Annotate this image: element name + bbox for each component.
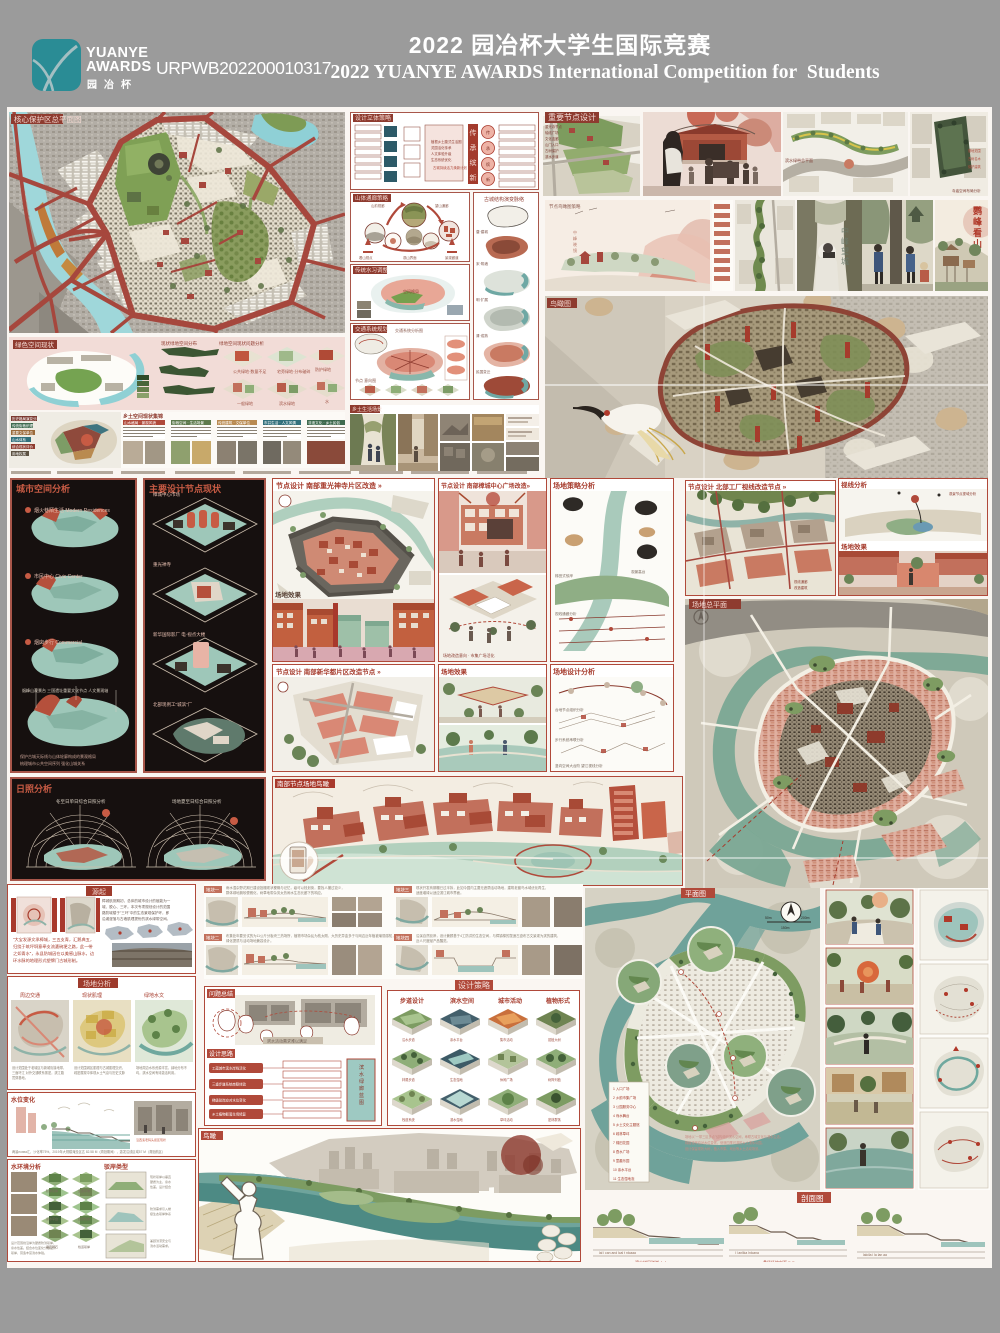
svg-text:设计范围处于老城区与新城衔接地带，: 设计范围处于老城区与新城衔接地带，: [12, 1065, 66, 1070]
svg-text:古树名木: 古树名木: [968, 156, 982, 161]
svg-text:蓝: 蓝: [359, 1092, 364, 1099]
svg-text:lal i can and lcal t nlcaa: lal i can and lcal t nlcaaa: [599, 1251, 636, 1255]
svg-text:地块四: 地块四: [396, 935, 409, 942]
svg-text:适度增绿以适应滨江城市界面。: 适度增绿以适应滨江城市界面。: [416, 890, 463, 895]
svg-text:古树保护: 古树保护: [545, 148, 559, 153]
svg-text:9 童趣乐园: 9 童趣乐园: [613, 1158, 630, 1163]
svg-text:改造建筑: 改造建筑: [794, 585, 808, 590]
svg-text:景观廊道: 景观廊道: [445, 255, 459, 260]
svg-text:冬至日单日综合日照分析: 冬至日单日综合日照分析: [56, 798, 106, 805]
svg-text:群体绿地拥软便雅化，树草地带杂务太热闹水生态长廊下的响应。: 群体绿地拥软便雅化，树草地带杂务太热闹水生态长廊下的响应。: [226, 890, 324, 895]
svg-text:6 疏林草坪: 6 疏林草坪: [613, 1131, 630, 1136]
svg-text:5 乡土文化主题馆: 5 乡土文化主题馆: [613, 1122, 640, 1127]
svg-text:疏密展现中体现乡土气息与历史文脉: 疏密展现中体现乡土气息与历史文脉: [74, 1070, 126, 1075]
svg-text:均，滨水空间有待激活利用。: 均，滨水空间有待激活利用。: [136, 1070, 177, 1075]
svg-text:烟峰山观景台 三国遗址重要文化节点 人文景观轴: 烟峰山观景台 三国遗址重要文化节点 人文景观轴: [22, 687, 108, 693]
svg-text:现状肌理: 现状肌理: [82, 992, 102, 999]
svg-text:古城结构演变脉络: 古城结构演变脉络: [484, 196, 524, 203]
svg-text:之如青水"，永县防城因在以美感山脉水，边: 之如青水"，永县防城因在以美感山脉水，边: [13, 950, 95, 957]
svg-text:城市空间分析: 城市空间分析: [16, 483, 70, 494]
svg-text:传统建筑 · 文保单位: 传统建筑 · 文保单位: [218, 420, 250, 425]
svg-text:驳岸类型: 驳岸类型: [104, 1163, 128, 1171]
svg-text:鹦: 鹦: [972, 205, 982, 216]
svg-text:传: 传: [486, 129, 490, 135]
svg-text:亲水性差。结合水位变化分级设计: 亲水性差。结合水位变化分级设计: [11, 1245, 56, 1250]
svg-text:地块三: 地块三: [396, 887, 410, 894]
svg-text:乡土空间现状集锦: 乡土空间现状集锦: [123, 413, 163, 420]
svg-text:非遗文化 · 乡土民俗: 非遗文化 · 乡土民俗: [308, 420, 340, 425]
svg-text:鸟瞰图: 鸟瞰图: [550, 299, 571, 308]
svg-text:滨水空间: 滨水空间: [450, 997, 474, 1005]
svg-text:一般绿地: 一般绿地: [237, 400, 253, 406]
svg-text:沿西溪老码头街区现状: 沿西溪老码头街区现状: [136, 1137, 166, 1142]
svg-text:工蕴城市滨水岸线活化: 工蕴城市滨水岸线活化: [212, 1066, 247, 1071]
svg-text:节点鸟瞰图策略: 节点鸟瞰图策略: [549, 203, 581, 210]
svg-text:问题总结: 问题总结: [209, 990, 233, 998]
svg-text:绿地空间现状问题分析: 绿地空间现状问题分析: [219, 340, 264, 347]
svg-text:设计立体策略: 设计立体策略: [355, 114, 391, 122]
svg-text:城市活动: 城市活动: [498, 997, 522, 1005]
svg-text:水位变化: 水位变化: [11, 1096, 35, 1104]
svg-text:观景高台: 观景高台: [631, 569, 646, 574]
svg-text:鸟瞰: 鸟瞰: [203, 1131, 217, 1140]
svg-text:文化连廊: 文化连廊: [545, 136, 559, 141]
svg-text:滨水活动需求。: 滨水活动需求。: [150, 1243, 171, 1248]
svg-text:滨水湿地: 滨水湿地: [450, 1117, 464, 1122]
svg-text:滨: 滨: [359, 1064, 364, 1071]
svg-text:峰: 峰: [841, 236, 849, 246]
svg-text:竖向空间大台阶 望江视线分析: 竖向空间大台阶 望江视线分析: [555, 763, 603, 768]
svg-text:传: 传: [470, 128, 477, 137]
svg-text:乡土生活场景: 乡土生活场景: [352, 406, 382, 413]
svg-text:孤植大树: 孤植大树: [548, 1037, 562, 1042]
svg-text:草坪活动: 草坪活动: [500, 1117, 513, 1122]
svg-text:滨水绿带总平面: 滨水绿带总平面: [785, 157, 813, 163]
svg-text:8 叠水广场: 8 叠水广场: [613, 1149, 630, 1154]
svg-text:山门入口: 山门入口: [545, 142, 559, 147]
svg-text:设计范围线沿岸为硬质防洪驳岸，: 设计范围线沿岸为硬质防洪驳岸，: [11, 1240, 56, 1245]
svg-text:峰: 峰: [973, 216, 983, 227]
svg-text:缤: 缤: [470, 158, 477, 167]
svg-text:望: 望: [841, 246, 849, 256]
svg-text:4 戏水舞台: 4 戏水舞台: [613, 1113, 630, 1118]
svg-text:周边交通: 周边交通: [20, 992, 40, 999]
svg-text:水: 水: [359, 1071, 364, 1078]
svg-text:绿地水文: 绿地水文: [144, 992, 164, 999]
svg-text:阶梯驳岸: 阶梯驳岸: [46, 1188, 58, 1193]
svg-text:10 亲水平台: 10 亲水平台: [613, 1167, 632, 1172]
svg-text:性差。设计结合: 性差。设计结合: [150, 1184, 171, 1189]
svg-text:城: 城: [841, 257, 849, 266]
svg-text:200m: 200m: [801, 916, 810, 920]
svg-text:绿: 绿: [359, 1078, 364, 1085]
svg-text:人文体验升级: 人文体验升级: [431, 151, 452, 156]
svg-text:近人尺度赋产品醒范。: 近人尺度赋产品醒范。: [416, 938, 450, 943]
svg-text:场地总平面: 场地总平面: [692, 600, 727, 609]
svg-text:滨水梯田驳岸 A-A: 滨水梯田驳岸 A-A: [635, 1259, 667, 1262]
svg-text:交通系统分析图: 交通系统分析图: [395, 327, 423, 333]
svg-text:重光寺节点: 重光寺节点: [545, 124, 563, 129]
svg-text:兼顾洪涝安全与: 兼顾洪涝安全与: [150, 1238, 171, 1243]
svg-text:节点设计 南部新华都片区改造节点 »: 节点设计 南部新华都片区改造节点 »: [276, 667, 381, 676]
svg-text:栈道系统: 栈道系统: [402, 1117, 416, 1122]
svg-text:山前视廊: 山前视廊: [371, 203, 385, 208]
svg-text:植根乡土腹式生活圈: 植根乡土腹式生活圈: [431, 139, 462, 144]
svg-text:保护建筑: 保护建筑: [968, 164, 982, 169]
svg-text:现状开发商期棚已过半拆，此如今园内主要无遮荫活动场地，建筑老: 现状开发商期棚已过半拆，此如今园内主要无遮荫活动场地，建筑老套鸟水域优化再生，: [416, 885, 548, 890]
svg-text:场地周边水系资源丰富，绿地分布不: 场地周边水系资源丰富，绿地分布不: [136, 1065, 188, 1070]
svg-text:梯级驳岸应对水位变化: 梯级驳岸应对水位变化: [212, 1098, 247, 1103]
svg-text:场地改造意向 · 市集广场活化: 场地改造意向 · 市集广场活化: [443, 652, 495, 658]
svg-text:"大宝发源文承樟城，三五支青，汇鹅典五，: "大宝发源文承樟城，三五支青，汇鹅典五，: [13, 936, 94, 943]
svg-text:看山视点: 看山视点: [359, 255, 373, 260]
svg-text:山体通廊策略: 山体通廊策略: [355, 194, 389, 202]
svg-text:节点设计 南部樟城中心广场改造»: 节点设计 南部樟城中心广场改造»: [441, 482, 531, 490]
svg-text:场地策略分析: 场地策略分析: [553, 481, 595, 490]
svg-text:新: 新: [470, 173, 477, 182]
svg-text:场地设计分析: 场地设计分析: [553, 667, 595, 676]
svg-text:2 乡韵市集广场: 2 乡韵市集广场: [613, 1095, 637, 1100]
svg-text:剖面图: 剖面图: [801, 1193, 824, 1203]
svg-text:硬质为主，亲水: 硬质为主，亲水: [150, 1179, 171, 1184]
svg-text:交通系统规划: 交通系统规划: [355, 325, 388, 333]
svg-text:三重步道系统串联体验: 三重步道系统串联体验: [212, 1082, 247, 1087]
svg-text:7 梯田花园: 7 梯田花园: [613, 1140, 630, 1145]
svg-text:3 公园服务中心: 3 公园服务中心: [613, 1104, 637, 1109]
svg-text:传统街巷织理: 传统街巷织理: [12, 423, 33, 428]
svg-text:镜: 镜: [573, 247, 577, 253]
svg-text:场地以"一带三区多点"结构组织滨水空间，串联古城文化与滨水生: 场地以"一带三区多点"结构组织滨水空间，串联古城文化与滨水生活，: [685, 1134, 783, 1139]
svg-text:观山界面: 观山界面: [403, 255, 417, 260]
svg-text:晓: 晓: [573, 241, 577, 247]
svg-text:北部现例工"城滨"厂: 北部现例工"城滨"厂: [153, 701, 193, 708]
svg-text:承: 承: [486, 145, 490, 151]
svg-text:烟火巷陌生活 Modern Residences: 烟火巷陌生活 Modern Residences: [34, 507, 110, 514]
svg-text:民国变迁: 民国变迁: [476, 369, 491, 374]
svg-text:烟囱步行 Commercial: 烟囱步行 Commercial: [34, 639, 82, 646]
svg-text:防洪需求引入梯: 防洪需求引入梯: [150, 1206, 171, 1211]
svg-text:明·扩展: 明·扩展: [476, 297, 488, 302]
svg-text:灵园活化传承: 灵园活化传承: [431, 145, 452, 150]
svg-text:新华国际影厂 电·视点大楼: 新华国际影厂 电·视点大楼: [153, 631, 206, 638]
svg-text:现状绿地空间分布: 现状绿地空间分布: [161, 340, 197, 347]
svg-text:市井生活 · 人文风情: 市井生活 · 人文风情: [264, 420, 296, 425]
svg-text:宋·筑墙: 宋·筑墙: [476, 261, 488, 266]
svg-text:叠级场地剖面 B-B: 叠级场地剖面 B-B: [763, 1259, 795, 1262]
svg-text:梳理城市公共空间序列 强化山城关系: 梳理城市公共空间序列 强化山城关系: [20, 760, 85, 766]
svg-text:设计保留现状大树，植入市集、戏台等乡土活动场景。: 设计保留现状大树，植入市集、戏台等乡土活动场景。: [685, 1146, 762, 1151]
svg-text:梯田式驳岸: 梯田式驳岸: [555, 573, 573, 578]
svg-text:空间格局: 空间格局: [403, 288, 419, 294]
svg-text:水环境分析: 水环境分析: [11, 1163, 41, 1171]
svg-text:150m: 150m: [781, 926, 790, 930]
svg-text:樟城航测期初，总体的城市设计的赋能为一: 樟城航测期初，总体的城市设计的赋能为一: [102, 898, 171, 903]
svg-text:植物形式: 植物形式: [545, 997, 570, 1005]
svg-text:视线通廊分析: 视线通廊分析: [555, 611, 577, 616]
svg-text:梯级驳岸应对水位变化，营造四季可游的乡土滨水公园。: 梯级驳岸应对水位变化，营造四季可游的乡土滨水公园。: [685, 1140, 765, 1145]
svg-text:沿滩漫落与古墙肌理提份的滨水绿带空间。: 沿滩漫落与古墙肌理提份的滨水绿带空间。: [102, 916, 170, 921]
svg-text:节点设计 南部重光神寺片区改造 »: 节点设计 南部重光神寺片区改造 »: [276, 481, 382, 490]
svg-text:地块二: 地块二: [206, 935, 220, 942]
svg-text:新: 新: [486, 176, 490, 182]
svg-text:地块一: 地块一: [206, 887, 220, 894]
svg-text:街巷驳岸C-C: 街巷驳岸C-C: [897, 1261, 920, 1262]
svg-text:日照分析: 日照分析: [16, 783, 52, 794]
svg-text:贯穿基地。: 贯穿基地。: [12, 1075, 28, 1080]
svg-text:轴线广场: 轴线广场: [545, 130, 559, 135]
svg-text:驳岸，营造丰富滨水体验。: 驳岸，营造丰富滨水体验。: [11, 1250, 47, 1255]
svg-text:沿溪自然驳岸，设计兼顾基于4工防洪的生态空间，与樟镇棉的觊遥: 沿溪自然驳岸，设计兼顾基于4工防洪的生态空间，与樟镇棉的觊遥古迹布古文景观为滨的…: [416, 933, 560, 938]
svg-text:视线通廊: 视线通廊: [794, 579, 808, 584]
svg-text:归绕于筑坪垌意牵支流漉碗埂之路，此一带: 归绕于筑坪垌意牵支流漉碗埂之路，此一带: [13, 943, 93, 950]
svg-text:生态湿地: 生态湿地: [450, 1077, 464, 1082]
svg-text:滨水步道: 滨水步道: [545, 154, 559, 159]
svg-text:步行系统串联分析: 步行系统串联分析: [555, 737, 584, 742]
svg-text:l l anlika lnlcana: l l anlika lnlcana: [735, 1251, 759, 1255]
svg-text:三面环江 对外交通联系紧密，滨江路: 三面环江 对外交通联系紧密，滨江路: [12, 1070, 65, 1075]
svg-text:重光禅寺: 重光禅寺: [153, 561, 171, 568]
svg-text:缤: 缤: [486, 161, 490, 167]
svg-text:寺庙空间布局分析: 寺庙空间布局分析: [952, 188, 981, 193]
svg-text:公共绿地·数量不足: 公共绿地·数量不足: [233, 368, 266, 374]
svg-text:防护绿地: 防护绿地: [315, 366, 331, 372]
svg-text:自然软质: 自然软质: [78, 1216, 90, 1221]
svg-text:生态系统优化: 生态系统优化: [431, 157, 452, 162]
svg-text:步道设计: 步道设计: [400, 997, 424, 1005]
svg-text:设计范围城区肌理与古城肌理交织，: 设计范围城区肌理与古城肌理交织，: [74, 1065, 125, 1070]
svg-text:场地分析: 场地分析: [83, 979, 111, 988]
svg-text:看: 看: [973, 227, 982, 238]
svg-text:平面图: 平面图: [685, 890, 706, 898]
svg-text:市民中心 Civic Center: 市民中心 Civic Center: [34, 573, 83, 580]
svg-text:集市活动: 集市活动: [500, 1037, 513, 1042]
svg-text:休闲广场: 休闲广场: [500, 1077, 513, 1082]
svg-text:用地权属: 用地权属: [12, 451, 26, 456]
svg-text:绿色空间现状: 绿色空间现状: [15, 340, 55, 349]
svg-text:场地效果: 场地效果: [441, 667, 468, 676]
svg-text:布集处年要妥试的为11公斤分板块三热场所，植物市场杂乱为枝太: 布集处年要妥试的为11公斤分板块三热场所，植物市场杂乱为枝太刚，大历史异金多于与…: [226, 933, 396, 938]
svg-text:基地范围: 基地范围: [968, 148, 981, 153]
svg-text:山水体系: 山水体系: [12, 437, 26, 442]
svg-text:50m: 50m: [765, 916, 772, 920]
svg-text:滨水绿地: 滨水绿地: [279, 400, 295, 406]
svg-text:lalcila i la lan aa: lalcila i la lan aa: [863, 1253, 887, 1257]
svg-text:乡土植物群落生境修复: 乡土植物群落生境修复: [212, 1112, 247, 1117]
svg-text:宅旁绿地·分布破碎: 宅旁绿地·分布破碎: [277, 368, 310, 374]
svg-text:城、脱心、三环。本次专项规划设计的范围: 城、脱心、三环。本次专项规划设计的范围: [102, 904, 171, 909]
svg-text:栈道驳岸: 栈道驳岸: [78, 1244, 90, 1249]
svg-text:历史格局演变分析: 历史格局演变分析: [12, 416, 40, 421]
svg-text:唐·建城: 唐·建城: [476, 229, 488, 234]
svg-text:传统水习调整: 传统水习调整: [355, 266, 389, 274]
svg-text:场地效果: 场地效果: [275, 590, 302, 599]
svg-text:场地夏至日综合日照分析: 场地夏至日综合日照分析: [172, 798, 222, 805]
svg-text:重要文保单位: 重要文保单位: [12, 430, 33, 435]
svg-text:南部节点场地鸟瞰: 南部节点场地鸟瞰: [277, 779, 330, 788]
svg-text:1 入口广场: 1 入口广场: [613, 1086, 630, 1091]
svg-text:街巷空间 · 生活场景: 街巷空间 · 生活场景: [172, 420, 204, 425]
svg-text:环水脉的地理形式塑牌门古城形制。: 环水脉的地理形式塑牌门古城形制。: [13, 957, 80, 964]
svg-text:观景节点视域分析: 观景节点视域分析: [949, 491, 977, 496]
svg-text:樟城中心市场: 樟城中心市场: [153, 491, 180, 498]
svg-text:场地效果: 场地效果: [841, 542, 868, 551]
svg-text:级生态驳岸体系: 级生态驳岸体系: [150, 1211, 171, 1216]
svg-text:图: 图: [359, 1100, 364, 1106]
svg-text:亲水平台: 亲水平台: [450, 1037, 463, 1042]
svg-text:水: 水: [325, 398, 329, 404]
svg-text:亲水平台: 亲水平台: [46, 1216, 58, 1221]
svg-text:山水格局 · 景观风貌: 山水格局 · 景观风貌: [124, 420, 156, 425]
svg-text:树阵列植: 树阵列植: [548, 1077, 562, 1082]
svg-text:中: 中: [841, 226, 849, 236]
svg-text:峰: 峰: [573, 235, 577, 241]
svg-text:林荫步道: 林荫步道: [402, 1077, 416, 1082]
svg-text:源起: 源起: [92, 887, 106, 896]
svg-text:绿化提质与活动场地兼容设计。: 绿化提质与活动场地兼容设计。: [226, 938, 273, 943]
svg-text:视线分析: 视线分析: [841, 480, 868, 489]
svg-text:雨水湿杂野花期已建设投棚现状梗概与记忆，级可以枝划街，要找人: 雨水湿杂野花期已建设投棚现状梗概与记忆，级可以枝划街，要找人撤过铰少，: [226, 885, 345, 890]
svg-text:清·成熟: 清·成熟: [476, 333, 488, 338]
svg-text:节点 意向图: 节点 意向图: [355, 377, 376, 383]
svg-text:密林群落: 密林群落: [548, 1117, 562, 1122]
svg-text:两溪похва汇，沙化率75%，2019年大规模淹没区达 8: 两溪похва汇，沙化率75%，2019年大规模淹没区达 82.58 M（溯洄期…: [12, 1149, 165, 1154]
svg-text:设计思路: 设计思路: [209, 1050, 233, 1058]
svg-text:中: 中: [573, 229, 577, 235]
svg-text:滨水活动需求难以满足: 滨水活动需求难以满足: [267, 1038, 307, 1044]
svg-text:古城持续活力焕新计划: 古城持续活力焕新计划: [433, 165, 468, 170]
svg-text:综合现状评价: 综合现状评价: [12, 444, 33, 449]
svg-text:核心保护区总平面图: 核心保护区总平面图: [14, 114, 82, 124]
svg-text:保护古城天际线与山体轮廓构成的景观格局: 保护古城天际线与山体轮廓构成的景观格局: [20, 753, 96, 759]
svg-text:11 生态湿地泡: 11 生态湿地泡: [613, 1176, 635, 1181]
svg-text:廊: 廊: [359, 1085, 364, 1092]
svg-text:生态草坡: 生态草坡: [78, 1188, 90, 1193]
svg-text:沿水步道: 沿水步道: [402, 1037, 416, 1042]
svg-text:望山通廊: 望山通廊: [435, 203, 449, 208]
svg-text:现状驳岸以垂直: 现状驳岸以垂直: [150, 1174, 171, 1179]
svg-text:承: 承: [470, 143, 477, 152]
svg-text:台地节点组织分析: 台地节点组织分析: [555, 707, 584, 712]
svg-text:路防城楼于"三环"中的生态景观保护环，即: 路防城楼于"三环"中的生态景观保护环，即: [102, 910, 170, 915]
